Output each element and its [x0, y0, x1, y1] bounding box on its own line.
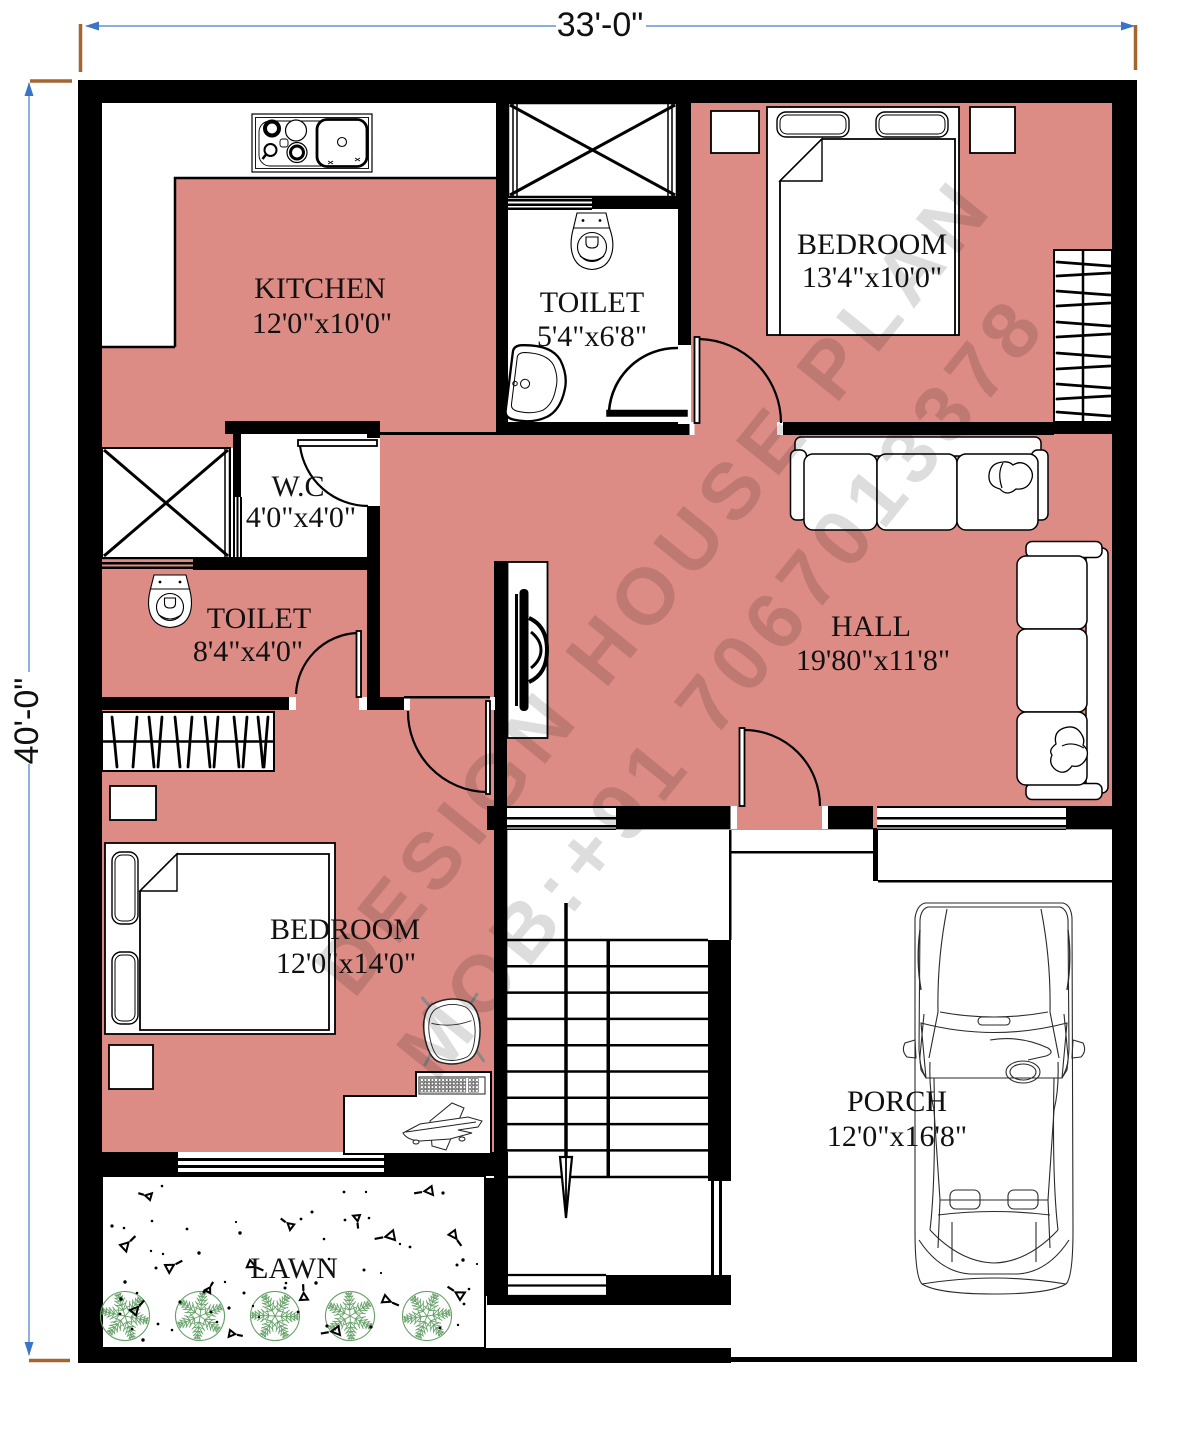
svg-text:TOILET: TOILET: [540, 286, 644, 319]
svg-text:12'0"x16'8": 12'0"x16'8": [827, 1120, 967, 1153]
svg-text:4'0"x4'0": 4'0"x4'0": [246, 501, 356, 534]
svg-text:8'4"x4'0": 8'4"x4'0": [193, 635, 303, 668]
svg-text:12'0"x14'0": 12'0"x14'0": [276, 947, 416, 980]
svg-text:40'-0": 40'-0": [8, 678, 46, 765]
svg-text:13'4"x10'0": 13'4"x10'0": [802, 261, 942, 294]
svg-text:TOILET: TOILET: [207, 602, 311, 635]
svg-text:KITCHEN: KITCHEN: [254, 272, 386, 305]
svg-text:12'0"x10'0": 12'0"x10'0": [252, 307, 392, 340]
svg-text:33'-0": 33'-0": [557, 6, 644, 44]
svg-text:PORCH: PORCH: [847, 1085, 947, 1118]
svg-text:W.C: W.C: [271, 470, 324, 503]
svg-text:BEDROOM: BEDROOM: [797, 228, 947, 261]
svg-text:BEDROOM: BEDROOM: [270, 913, 420, 946]
svg-text:HALL: HALL: [831, 610, 911, 643]
svg-text:LAWN: LAWN: [250, 1252, 338, 1285]
svg-text:5'4"x6'8": 5'4"x6'8": [537, 320, 647, 353]
svg-text:19'80"x11'8": 19'80"x11'8": [796, 644, 950, 677]
